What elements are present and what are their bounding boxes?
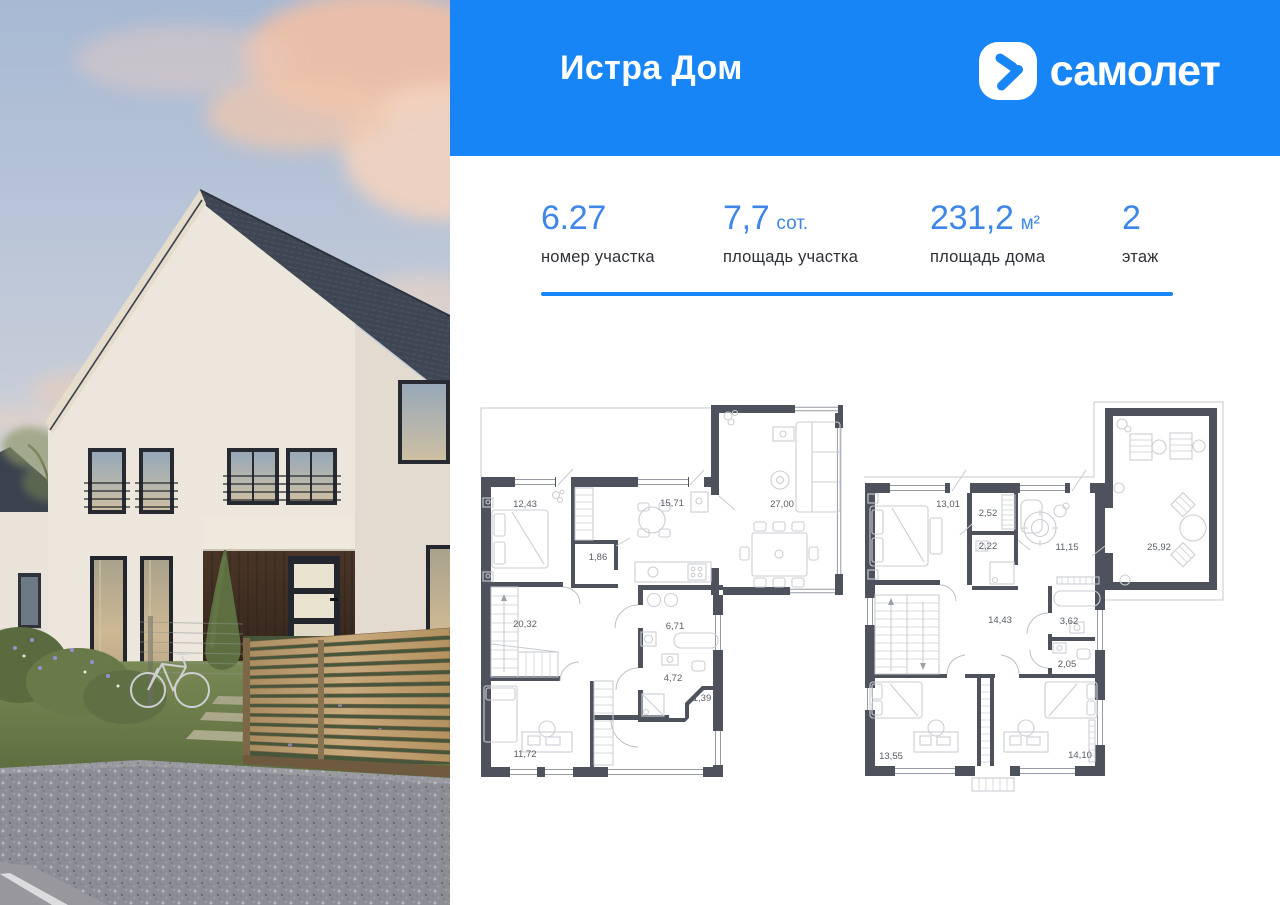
room-area-label: 14,10 <box>1068 750 1092 761</box>
stat-value: 7,7 <box>723 199 769 237</box>
house-photo <box>0 0 450 905</box>
furniture <box>483 411 840 753</box>
stairs <box>875 595 939 674</box>
room-area-label: 13,55 <box>879 751 903 762</box>
room-area-label: 12,43 <box>513 499 537 510</box>
room-area-label: 25,92 <box>1147 542 1171 553</box>
room-area-label: 14,43 <box>988 615 1012 626</box>
furniture <box>868 419 1206 762</box>
stat-house-area: 231,2м² площадь дома <box>930 201 1045 267</box>
stat-floors: 2 этаж <box>1122 201 1158 267</box>
wardrobes <box>575 488 613 765</box>
room-area-label: 2,05 <box>1058 659 1077 670</box>
stat-value: 6.27 <box>541 199 606 237</box>
room-area-label: 3,62 <box>1060 616 1079 627</box>
stat-label: номер участка <box>541 248 655 267</box>
wardrobes <box>981 495 1015 762</box>
room-area-label: 1,39 <box>693 693 712 704</box>
stat-suffix: сот. <box>776 213 808 234</box>
room-area-label: 11,15 <box>1055 542 1078 553</box>
stat-label: площадь дома <box>930 248 1045 267</box>
room-area-label: 4,72 <box>664 673 683 684</box>
walls <box>865 408 1217 776</box>
stat-plot-area: 7,7сот. площадь участка <box>723 201 858 267</box>
stat-label: площадь участка <box>723 248 858 267</box>
slat-fence <box>243 628 450 778</box>
gravel <box>0 760 450 905</box>
doors <box>940 524 1105 674</box>
roof-outline <box>481 408 711 477</box>
stat-label: этаж <box>1122 248 1158 267</box>
stairs <box>491 587 558 677</box>
brand-name: самолет <box>1050 50 1220 93</box>
floor-1-plan: 12,43 1,86 15,71 27,00 20,32 6,71 4,72 1… <box>478 400 848 790</box>
samolet-logo: самолет <box>979 42 1220 100</box>
room-area-label: 27,00 <box>770 499 794 510</box>
brand-header: Истра Дом самолет <box>450 0 1280 156</box>
terrace-outline <box>1094 402 1223 600</box>
project-title: Истра Дом <box>560 49 743 88</box>
house-photo-render <box>0 0 450 905</box>
room-area-label: 11,72 <box>513 749 536 760</box>
floor-2-plan: 13,01 2,52 2,22 11,15 25,92 14,43 3,62 2… <box>862 398 1234 794</box>
room-area-label: 20,32 <box>513 619 537 630</box>
room-area-label: 2,22 <box>979 541 998 552</box>
stat-suffix: м² <box>1021 213 1040 234</box>
room-area-label: 6,71 <box>666 621 685 632</box>
samolet-arrow-icon <box>979 42 1037 100</box>
room-area-label: 15,71 <box>660 498 684 509</box>
stat-value: 231,2 <box>930 199 1014 237</box>
stat-value: 2 <box>1122 199 1141 237</box>
room-area-label: 2,52 <box>979 508 998 519</box>
room-area-label: 13,01 <box>936 499 960 510</box>
stat-plot-number: 6.27 номер участка <box>541 201 655 267</box>
listing-card: Истра Дом самолет 6.27 номер участка 7,7… <box>0 0 1280 905</box>
stats-underline <box>541 292 1173 296</box>
room-area-label: 1,86 <box>589 552 608 563</box>
walls <box>481 405 843 777</box>
